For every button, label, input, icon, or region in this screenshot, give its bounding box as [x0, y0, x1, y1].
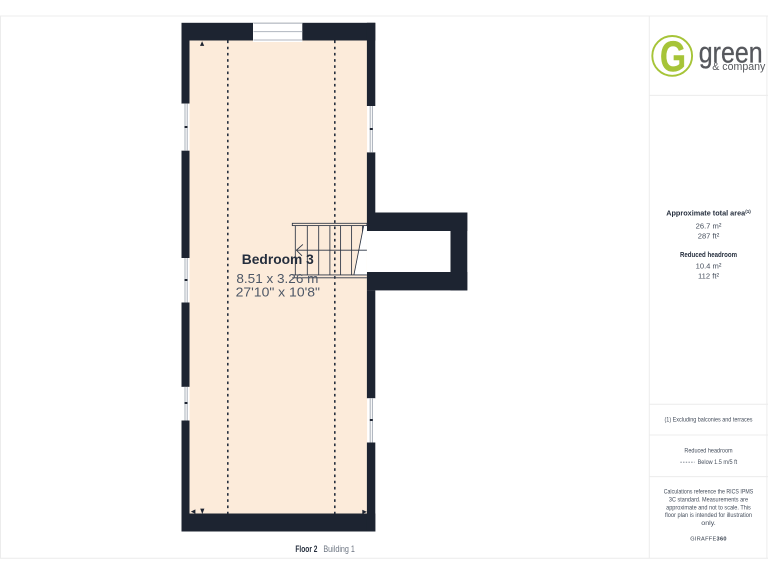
svg-text:Below 1.5 m/5 ft: Below 1.5 m/5 ft — [698, 459, 738, 466]
svg-text:approximate and not to scale.: approximate and not to scale. This — [666, 504, 751, 511]
svg-text:Floor 2: Floor 2 — [295, 544, 317, 554]
svg-text:10.4 m²: 10.4 m² — [696, 262, 722, 271]
svg-text:(1) Excluding balconies and te: (1) Excluding balconies and terraces — [665, 416, 753, 423]
svg-text:Reduced headroom: Reduced headroom — [680, 250, 737, 259]
svg-text:Calculations reference the RIC: Calculations reference the RICS IPMS — [664, 489, 754, 496]
svg-text:only.: only. — [701, 520, 716, 527]
svg-text:& company: & company — [712, 61, 765, 73]
svg-text:Building 1: Building 1 — [323, 544, 355, 554]
svg-text:112 ft²: 112 ft² — [698, 272, 719, 281]
svg-text:26.7 m²: 26.7 m² — [696, 222, 722, 231]
svg-text:floor plan is intended for ill: floor plan is intended for illustration — [665, 512, 752, 519]
svg-text:Bedroom 3: Bedroom 3 — [242, 251, 314, 267]
svg-text:G: G — [660, 33, 686, 81]
svg-text:8.51 x 3.26 m: 8.51 x 3.26 m — [236, 272, 318, 286]
svg-text:GIRAFFE360: GIRAFFE360 — [690, 537, 727, 543]
svg-text:287 ft²: 287 ft² — [698, 232, 720, 241]
svg-text:27'10" x 10'8": 27'10" x 10'8" — [236, 286, 320, 300]
svg-text:Approximate total area(1): Approximate total area(1) — [666, 209, 751, 218]
svg-text:Reduced headroom: Reduced headroom — [684, 447, 732, 454]
svg-text:3C standard. Measurements are: 3C standard. Measurements are — [669, 496, 748, 503]
